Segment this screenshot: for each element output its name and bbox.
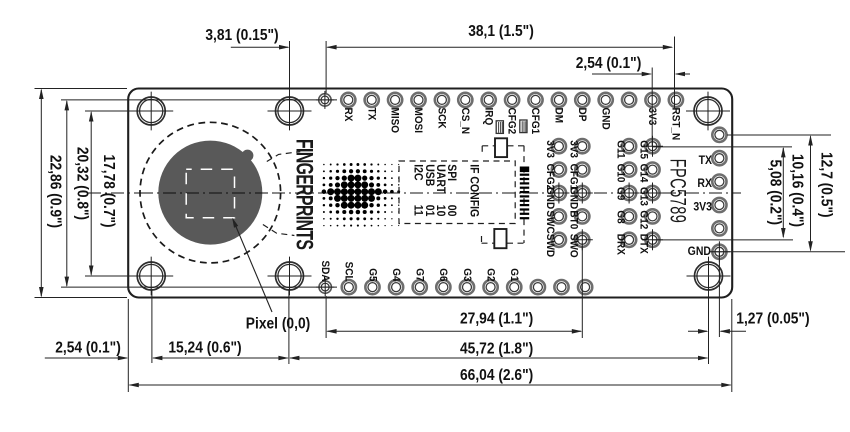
svg-text:10,16 (0.4"): 10,16 (0.4") — [788, 154, 805, 227]
svg-text:RST_N: RST_N — [669, 108, 682, 141]
svg-text:RX: RX — [342, 108, 355, 123]
svg-text:G7: G7 — [413, 268, 426, 281]
svg-text:IF CONFIG: IF CONFIG — [467, 164, 480, 217]
svg-text:DP: DP — [576, 108, 589, 122]
svg-text:SWD: SWD — [544, 234, 557, 258]
svg-text:1,27 (0.05"): 1,27 (0.05") — [736, 311, 809, 328]
svg-text:G13: G13 — [638, 187, 651, 206]
svg-text:DTX: DTX — [638, 234, 651, 255]
svg-text:3V3: 3V3 — [567, 140, 580, 158]
svg-text:G8: G8 — [614, 210, 627, 223]
svg-text:SPI: SPI — [445, 164, 458, 181]
svg-text:RX: RX — [697, 178, 712, 191]
svg-text:SCL: SCL — [342, 262, 355, 282]
svg-text:66,04 (2.6"): 66,04 (2.6") — [460, 367, 533, 384]
svg-text:27,94 (1.1"): 27,94 (1.1") — [460, 311, 533, 328]
svg-text:IRQ: IRQ — [482, 108, 495, 126]
svg-text:3,81 (0.15"): 3,81 (0.15") — [205, 27, 278, 44]
svg-text:SCK: SCK — [435, 108, 448, 129]
svg-text:2,54 (0.1"): 2,54 (0.1") — [576, 55, 642, 72]
svg-text:45,72 (1.8"): 45,72 (1.8") — [460, 341, 533, 358]
svg-text:SWC: SWC — [544, 210, 557, 234]
svg-text:17,78 (0.7"): 17,78 (0.7") — [100, 154, 117, 227]
svg-text:CS_N: CS_N — [459, 108, 472, 135]
svg-text:CFG2: CFG2 — [506, 108, 519, 135]
svg-text:MISO: MISO — [389, 108, 402, 134]
svg-text:G10: G10 — [614, 164, 627, 183]
svg-text:FPC5789: FPC5789 — [666, 159, 691, 224]
svg-text:SWO: SWO — [567, 234, 580, 258]
svg-text:00: 00 — [445, 205, 458, 217]
svg-text:G11: G11 — [614, 140, 627, 158]
svg-text:15,24 (0.6"): 15,24 (0.6") — [168, 340, 241, 357]
svg-text:2,54 (0.1"): 2,54 (0.1") — [55, 340, 121, 357]
svg-text:22,86 (0.9"): 22,86 (0.9") — [46, 155, 63, 228]
svg-text:20,32 (0.8"): 20,32 (0.8") — [73, 147, 90, 220]
svg-text:38,1 (1.5"): 38,1 (1.5") — [468, 23, 534, 40]
svg-text:GND: GND — [688, 246, 711, 259]
svg-text:G14: G14 — [638, 164, 651, 183]
svg-text:5,08 (0.2"): 5,08 (0.2") — [766, 160, 783, 226]
svg-text:G4: G4 — [390, 268, 403, 281]
svg-text:G3: G3 — [461, 268, 474, 281]
svg-text:3V3: 3V3 — [693, 201, 712, 214]
svg-text:SDA: SDA — [319, 261, 332, 282]
svg-text:G6: G6 — [437, 268, 450, 281]
svg-text:GND: GND — [544, 187, 557, 209]
svg-text:G9: G9 — [614, 187, 627, 200]
svg-text:DRX: DRX — [614, 234, 627, 256]
svg-text:MOSI: MOSI — [412, 108, 425, 134]
svg-text:CFG1: CFG1 — [529, 108, 542, 135]
svg-text:G15: G15 — [638, 140, 651, 159]
svg-text:TX: TX — [365, 108, 378, 122]
svg-text:G1: G1 — [508, 268, 521, 281]
svg-text:GND: GND — [599, 108, 612, 130]
svg-text:3V3: 3V3 — [544, 140, 557, 158]
svg-text:G5: G5 — [366, 268, 379, 281]
svg-text:Pixel (0,0): Pixel (0,0) — [246, 316, 310, 333]
svg-text:12,7 (0.5"): 12,7 (0.5") — [817, 152, 834, 218]
svg-text:DM: DM — [552, 108, 565, 124]
svg-text:GND: GND — [567, 187, 580, 209]
svg-text:BT0: BT0 — [567, 210, 580, 229]
svg-text:G12: G12 — [638, 210, 651, 229]
svg-text:FINGERPRINTS: FINGERPRINTS — [291, 139, 318, 249]
svg-text:G2: G2 — [484, 268, 497, 281]
svg-text:TX: TX — [699, 154, 713, 167]
